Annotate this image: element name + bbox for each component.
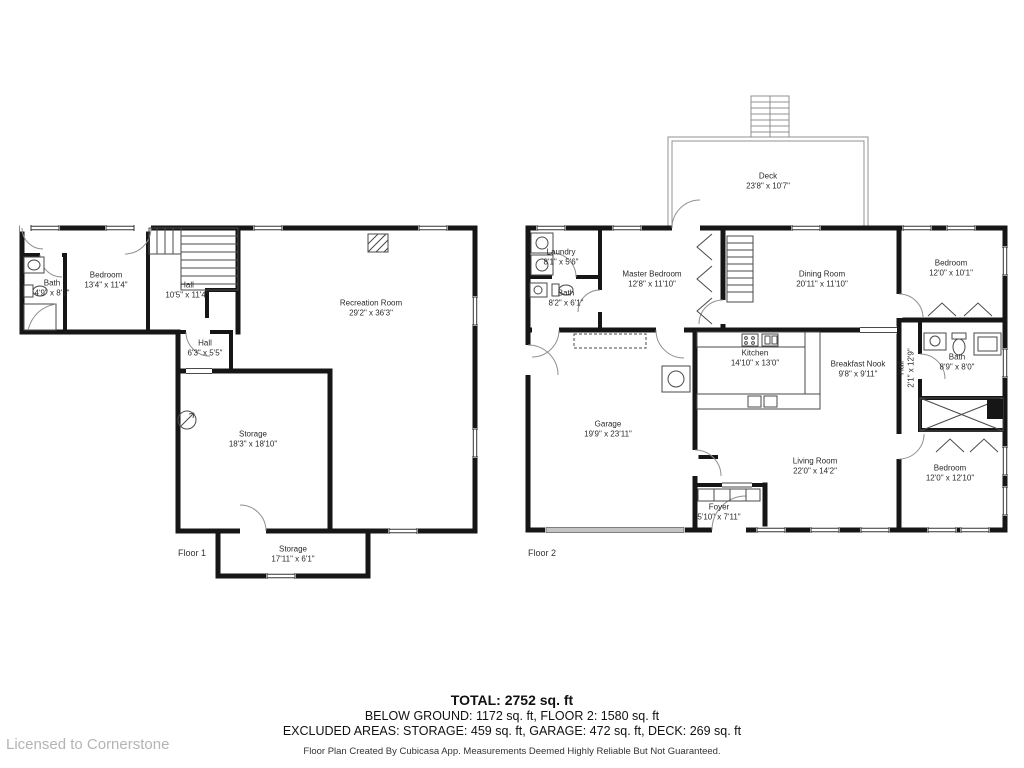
room-dims: 4'9" x 8'1" <box>35 289 70 299</box>
floor-areas: BELOW GROUND: 1172 sq. ft, FLOOR 2: 1580… <box>0 709 1024 723</box>
floorplan-page: Bath4'9" x 8'1" Bedroom13'4" x 11'4" Hal… <box>0 0 1024 768</box>
room-label-recreation-room: Recreation Room29'2" x 36'3" <box>340 299 402 320</box>
room-label-hall-f1: Hall10'5" x 11'4" <box>165 281 208 302</box>
room-name: Storage <box>229 430 277 440</box>
closet-chevrons-bedroom-bottom <box>936 439 998 452</box>
floor2-tag: Floor 2 <box>528 548 556 558</box>
room-name: Deck <box>746 172 790 182</box>
room-dims: 8'1" x 5'6" <box>544 258 579 268</box>
room-name: Bedroom <box>926 464 974 474</box>
garage-fixtures <box>574 334 690 392</box>
room-name: Bedroom <box>84 271 127 281</box>
closet-chevrons-bedroom-top <box>928 303 992 316</box>
room-dims: 18'3" x 18'10" <box>229 440 277 450</box>
floor1-tag: Floor 1 <box>178 548 206 558</box>
room-label-bath-f2-left: Bath8'2" x 6'1" <box>549 289 584 310</box>
total-area: TOTAL: 2752 sq. ft <box>0 692 1024 708</box>
room-name: Hall <box>188 339 223 349</box>
room-dims: 22'0" x 14'2" <box>793 467 837 477</box>
room-name: Bath <box>35 279 70 289</box>
room-name: Bath <box>549 289 584 299</box>
floorplan-canvas <box>0 0 1024 768</box>
room-name: Storage <box>271 545 314 555</box>
room-name: Master Bedroom <box>622 270 681 280</box>
room-name: Garage <box>584 420 632 430</box>
closet-chevrons-master <box>697 234 712 324</box>
room-dims: 19'9" x 23'11" <box>584 430 632 440</box>
room-label-garage: Garage19'9" x 23'11" <box>584 420 632 441</box>
room-name: Hall <box>165 281 208 291</box>
room-label-living-room: Living Room22'0" x 14'2" <box>793 457 837 478</box>
deck-outline <box>668 96 868 227</box>
room-dims: 5'10" x 7'11" <box>697 513 740 523</box>
room-label-bedroom-top-right: Bedroom12'0" x 10'1" <box>929 259 973 280</box>
garage-door <box>546 528 684 533</box>
room-label-bedroom-bottom-right: Bedroom12'0" x 12'10" <box>926 464 974 485</box>
room-name: Hall <box>897 348 907 387</box>
license-text: Licensed to Cornerstone <box>6 736 169 753</box>
room-dims: 13'4" x 11'4" <box>84 281 127 291</box>
room-dims: 12'0" x 12'10" <box>926 474 974 484</box>
room-dims: 9'8" x 9'11" <box>831 370 886 380</box>
room-name: Kitchen <box>731 349 779 359</box>
room-name: Foyer <box>697 503 740 513</box>
foyer-closet <box>698 489 760 501</box>
room-label-dining-room: Dining Room20'11" x 11'10" <box>796 270 848 291</box>
room-name: Bedroom <box>929 259 973 269</box>
room-dims: 20'11" x 11'10" <box>796 280 848 290</box>
room-dims: 8'9" x 8'0" <box>940 363 975 373</box>
room-label-hall-f2: Hall2'1" x 12'9" <box>897 348 918 387</box>
room-dims: 10'5" x 11'4" <box>165 291 208 301</box>
room-name: Bath <box>940 353 975 363</box>
room-name: Laundry <box>544 248 579 258</box>
room-name: Living Room <box>793 457 837 467</box>
room-name: Breakfast Nook <box>831 360 886 370</box>
room-label-deck: Deck23'8" x 10'7" <box>746 172 790 193</box>
room-label-bath-f1: Bath4'9" x 8'1" <box>35 279 70 300</box>
room-name: Recreation Room <box>340 299 402 309</box>
room-dims: 12'0" x 10'1" <box>929 269 973 279</box>
room-label-bedroom-f1: Bedroom13'4" x 11'4" <box>84 271 127 292</box>
room-label-storage2-f1: Storage17'11" x 6'1" <box>271 545 314 566</box>
room-name: Dining Room <box>796 270 848 280</box>
room-dims: 23'8" x 10'7" <box>746 182 790 192</box>
room-label-kitchen: Kitchen14'10" x 13'0" <box>731 349 779 370</box>
room-label-hall2-f1: Hall6'3" x 5'5" <box>188 339 223 360</box>
room-dims: 29'2" x 36'3" <box>340 309 402 319</box>
room-dims: 2'1" x 12'9" <box>907 348 917 387</box>
electrical-panel-icon <box>178 411 196 429</box>
room-dims: 8'2" x 6'1" <box>549 299 584 309</box>
room-dims: 12'8" x 11'10" <box>622 280 681 290</box>
room-label-storage-f1: Storage18'3" x 18'10" <box>229 430 277 451</box>
room-label-breakfast-nook: Breakfast Nook9'8" x 9'11" <box>831 360 886 381</box>
stairs-icon-floor2 <box>727 236 753 302</box>
room-label-bath-f2-right: Bath8'9" x 8'0" <box>940 353 975 374</box>
chimney-hatch <box>368 234 388 252</box>
room-dims: 17'11" x 6'1" <box>271 555 314 565</box>
kitchen-counters <box>697 332 820 409</box>
room-dims: 6'3" x 5'5" <box>188 349 223 359</box>
room-label-master-bedroom: Master Bedroom12'8" x 11'10" <box>622 270 681 291</box>
room-label-foyer: Foyer5'10" x 7'11" <box>697 503 740 524</box>
room-label-laundry: Laundry8'1" x 5'6" <box>544 248 579 269</box>
room-dims: 14'10" x 13'0" <box>731 359 779 369</box>
open-to-below-box <box>920 398 1003 431</box>
